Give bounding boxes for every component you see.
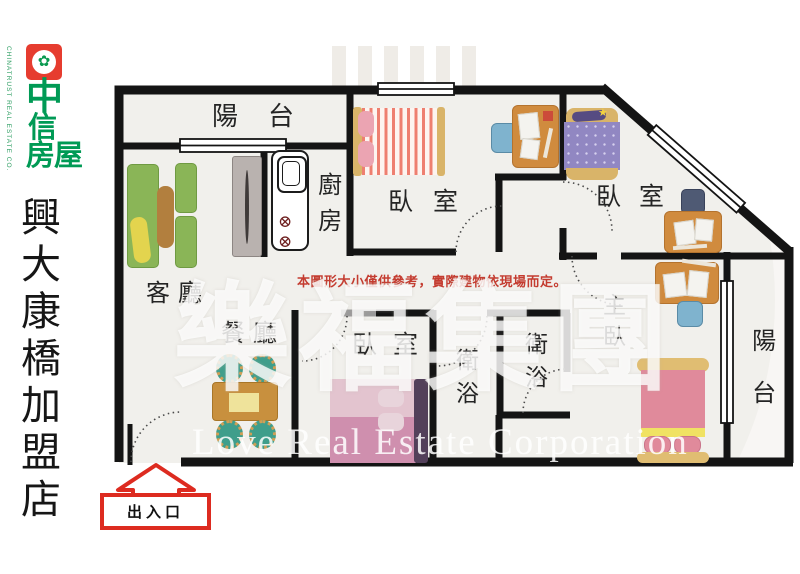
sofa-seat-top bbox=[175, 163, 197, 213]
room-label-bedroom-2: 臥室 bbox=[596, 184, 682, 213]
bed1-pillow bbox=[358, 141, 374, 167]
watermark-english: Love Real Estate Corporation bbox=[192, 421, 689, 464]
tv-cabinet bbox=[232, 156, 262, 257]
desk-ruler bbox=[673, 244, 707, 250]
desk-paper bbox=[520, 138, 541, 160]
kitchen-counter: ⊗⊗ bbox=[271, 150, 309, 251]
tv-screen bbox=[245, 170, 249, 244]
desk-paper bbox=[673, 220, 696, 247]
sofa-seat-bottom bbox=[175, 216, 197, 268]
watermark-group-name: 樂福集團 bbox=[173, 282, 677, 400]
desk-ruler bbox=[543, 128, 553, 158]
desk-paper bbox=[694, 218, 714, 241]
entrance-label-box: 出入口 bbox=[100, 493, 211, 530]
star-icon: ★ bbox=[598, 106, 608, 119]
floorplan-page: CHINATRUST REAL ESTATE CO. ✿ 中 信 房屋 興大康橋… bbox=[0, 0, 800, 574]
master-desk-chair bbox=[677, 301, 703, 327]
sink-basin bbox=[282, 161, 300, 186]
stove-burners-icon: ⊗⊗ bbox=[278, 212, 292, 251]
bed2-mattress bbox=[564, 122, 620, 170]
desk-paper bbox=[687, 270, 710, 298]
bed1-footboard bbox=[437, 107, 445, 176]
bed1-pillow bbox=[358, 111, 374, 137]
watermark-slogan: 成就夢想 安居樂福 bbox=[284, 473, 637, 524]
desk2 bbox=[664, 211, 722, 253]
room-label-kitchen: 廚房 bbox=[312, 172, 340, 244]
desk-paper bbox=[518, 112, 541, 140]
kitchen-sink bbox=[277, 156, 307, 193]
room-label-balcony-top: 陽台 bbox=[212, 102, 324, 132]
desk1 bbox=[512, 105, 559, 168]
coffee-table bbox=[157, 186, 174, 248]
desk-accessory bbox=[543, 111, 553, 121]
bed2-footboard bbox=[566, 168, 618, 180]
room-label-balcony-right: 陽台 bbox=[746, 328, 774, 432]
room-label-bedroom-1: 臥室 bbox=[388, 189, 478, 218]
